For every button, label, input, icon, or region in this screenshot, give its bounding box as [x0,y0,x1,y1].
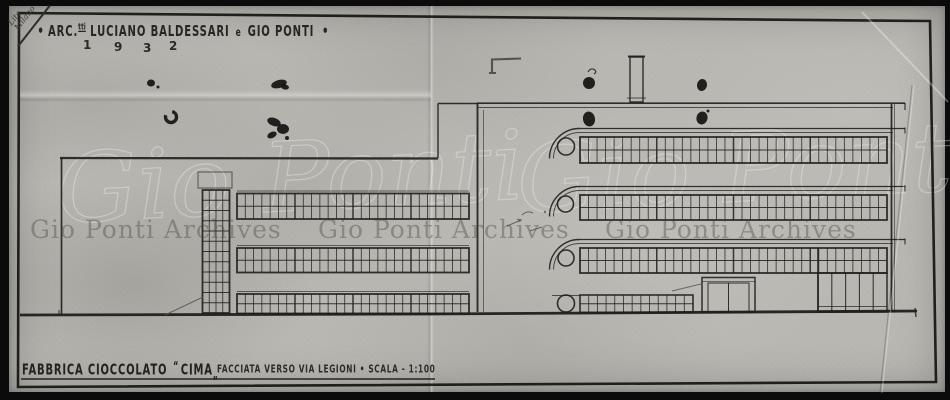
watermark-archive-1: Gio Ponti Archives [30,215,282,244]
caption-scale: SCALA - 1:100 [368,364,435,376]
watermark-archive-3: Gio Ponti Archives [605,215,857,244]
caption-project: FABBRICA CIOCCOLATO [22,360,167,378]
window-band-left-2 [237,246,469,273]
year-digit: 2 [169,39,177,53]
architect-name-ponti: GIO PONTI [248,22,315,40]
ground-floor-band [580,295,693,313]
caption-subtitle: FACCIATA VERSO VIA LEGIONI • SCALA - 1:1… [217,364,435,376]
archival-photo: Gio Ponti Gio Ponti Gio Ponti Archives G… [0,0,950,400]
roof-parapet [477,103,905,110]
chimney [627,57,646,103]
year-digit: 9 [114,40,122,54]
year-digit: 3 [143,41,151,55]
caption-quote-open: “ [172,360,181,373]
caption-underline [21,378,435,380]
window-band-left-3 [237,292,469,314]
watermark-archive-2: Gio Ponti Archives [318,215,570,244]
title-bullet-left: • [34,22,48,40]
balcony-railing-1 [550,128,906,159]
year-digit: 1 [83,38,91,52]
ink-blobs [147,69,710,140]
title-block: •ARC.tti LUCIANO BALDESSARI e GIO PONTI … [34,22,333,40]
architect-name-baldessari: LUCIANO BALDESSARI [90,22,229,40]
window-band-right-1 [580,137,887,163]
balcony-railing-2 [550,186,906,217]
caption-separator: • [360,364,365,376]
architects-abbrev-sup: tti [78,22,86,32]
blueprint-paper: Gio Ponti Gio Ponti Gio Ponti Archives G… [9,6,945,392]
facade-drawing [0,0,950,400]
entrance-door [702,278,755,313]
window-band-right-3 [580,248,887,273]
caption-facade-label: FACCIATA VERSO VIA LEGIONI [217,364,357,376]
conjunction-e: e [234,27,243,40]
architects-prefix: ARC. [48,22,78,40]
title-bullet-right: • [319,22,333,40]
caption-project-name: CIMA [181,360,213,378]
